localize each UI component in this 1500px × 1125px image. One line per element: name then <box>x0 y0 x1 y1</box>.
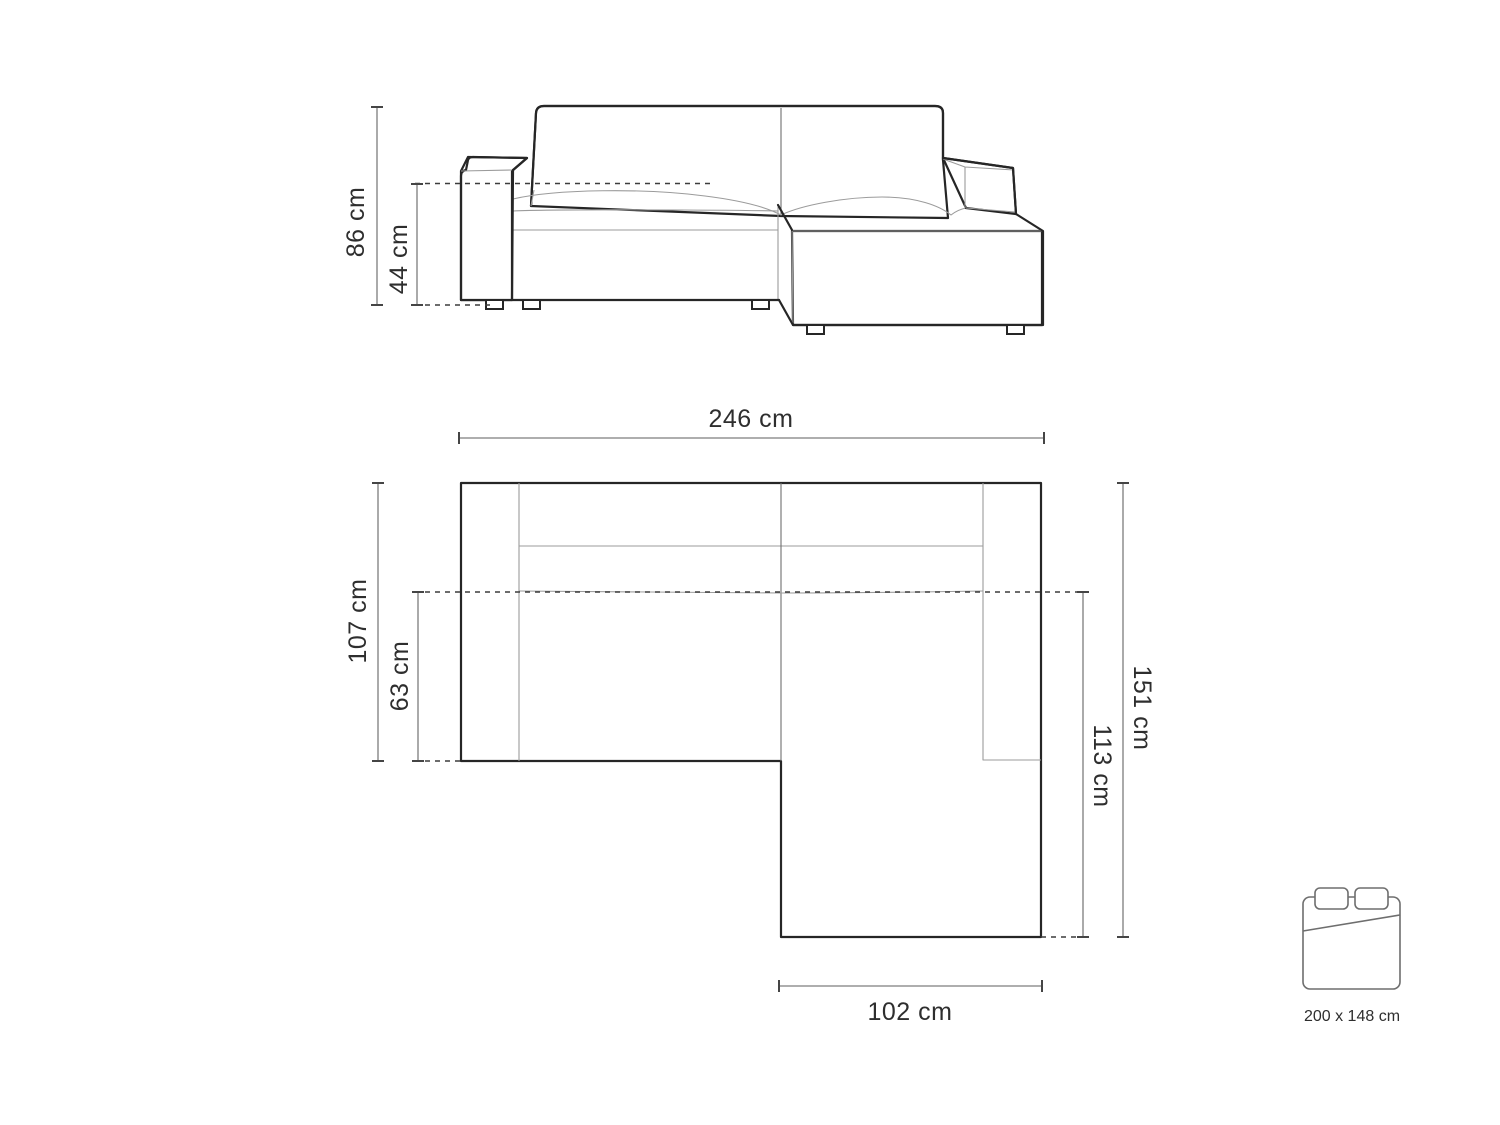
top-plan-view: 246 cm 107 cm 63 cm 151 cm 113 cm <box>344 405 1156 1026</box>
dimension-chaise-depth: 113 cm <box>1077 592 1116 937</box>
dimension-label-seat-depth: 63 cm <box>386 641 414 712</box>
sleeping-area-legend: 200 x 148 cm <box>1303 888 1400 1025</box>
dimension-chaise-width: 102 cm <box>779 980 1042 1026</box>
sofa-dimension-diagram: 86 cm 44 cm 246 cm <box>0 0 1500 1125</box>
dimension-total-height: 86 cm <box>342 107 383 305</box>
dimension-body-depth: 107 cm <box>344 483 384 761</box>
chaise-front <box>778 205 1043 325</box>
sofa-plan-outline <box>461 483 1041 937</box>
dimension-seat-height: 44 cm <box>385 184 423 305</box>
dimension-total-depth: 151 cm <box>1117 483 1156 937</box>
right-armrest-front <box>943 158 1016 214</box>
left-armrest-front <box>461 157 527 300</box>
dimension-label-total-height: 86 cm <box>342 187 370 258</box>
front-elevation-view: 86 cm 44 cm <box>342 106 1043 334</box>
dimension-total-width: 246 cm <box>459 405 1044 444</box>
dimension-seat-depth: 63 cm <box>386 592 424 761</box>
dimension-label-total-width: 246 cm <box>709 405 794 433</box>
dimension-label-chaise-depth: 113 cm <box>1088 724 1116 807</box>
bed-icon <box>1303 888 1400 989</box>
sleeping-area-size-label: 200 x 148 cm <box>1304 1008 1400 1025</box>
dimension-label-seat-height: 44 cm <box>385 224 413 295</box>
dimension-label-total-depth: 151 cm <box>1128 666 1156 751</box>
dimension-label-chaise-width: 102 cm <box>868 998 953 1026</box>
dimension-label-body-depth: 107 cm <box>344 579 372 664</box>
